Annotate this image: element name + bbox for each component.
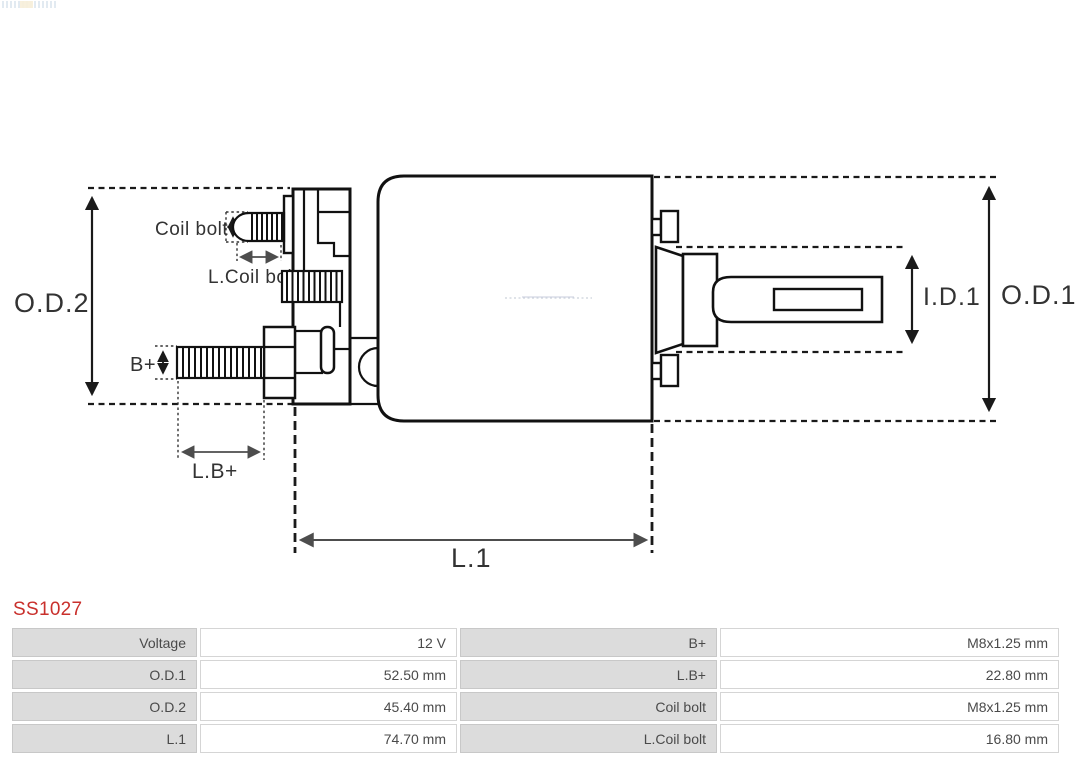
spec-value-cell: M8x1.25 mm [720, 628, 1059, 657]
spec-value-cell: 16.80 mm [720, 724, 1059, 753]
spec-value-cell: M8x1.25 mm [720, 692, 1059, 721]
spec-label-cell: Coil bolt [460, 692, 717, 721]
spec-label-cell: L.1 [12, 724, 197, 753]
table-row: Voltage 12 V B+ M8x1.25 mm [12, 628, 1059, 657]
spec-label-cell: O.D.2 [12, 692, 197, 721]
dimension-label-id1: I.D.1 [923, 283, 981, 311]
dimension-lines-l-coil-bolt [237, 243, 281, 261]
threaded-bushing [282, 271, 342, 302]
spec-value-cell: 45.40 mm [200, 692, 457, 721]
coil-bolt [233, 213, 284, 241]
dimension-label-b-plus: B+ [130, 354, 156, 376]
dimension-label-lb-plus: L.B+ [192, 460, 238, 483]
spec-value-cell: 12 V [200, 628, 457, 657]
dimension-label-l1: L.1 [451, 543, 492, 573]
plunger-slot [774, 289, 862, 310]
plunger [656, 247, 882, 353]
spec-label-cell: Voltage [12, 628, 197, 657]
washer [321, 327, 334, 373]
spec-value-cell: 74.70 mm [200, 724, 457, 753]
product-code-title: SS1027 [13, 599, 82, 621]
table-row: O.D.1 52.50 mm L.B+ 22.80 mm [12, 660, 1059, 689]
table-row: L.1 74.70 mm L.Coil bolt 16.80 mm [12, 724, 1059, 753]
dimension-lines-lb-plus [178, 381, 264, 460]
spec-label-cell: L.B+ [460, 660, 717, 689]
dimension-lines-l1 [295, 407, 652, 553]
spec-table: Voltage 12 V B+ M8x1.25 mm O.D.1 52.50 m… [9, 625, 1062, 756]
spec-label-cell: L.Coil bolt [460, 724, 717, 753]
spec-value-cell: 22.80 mm [720, 660, 1059, 689]
dimension-label-od1: O.D.1 [1001, 280, 1077, 310]
table-row: O.D.2 45.40 mm Coil bolt M8x1.25 mm [12, 692, 1059, 721]
spec-value-cell: 52.50 mm [200, 660, 457, 689]
dimension-label-coil-bolt: Coil bolt [155, 219, 228, 240]
solenoid-technical-diagram: O.D.2 O.D.1 I.D.1 L.1 L.B+ B+ Coil bolt [0, 0, 1080, 592]
dimension-lines-b-plus [155, 346, 177, 379]
spec-label-cell: B+ [460, 628, 717, 657]
dimension-label-od2: O.D.2 [14, 288, 90, 318]
spec-label-cell: O.D.1 [12, 660, 197, 689]
